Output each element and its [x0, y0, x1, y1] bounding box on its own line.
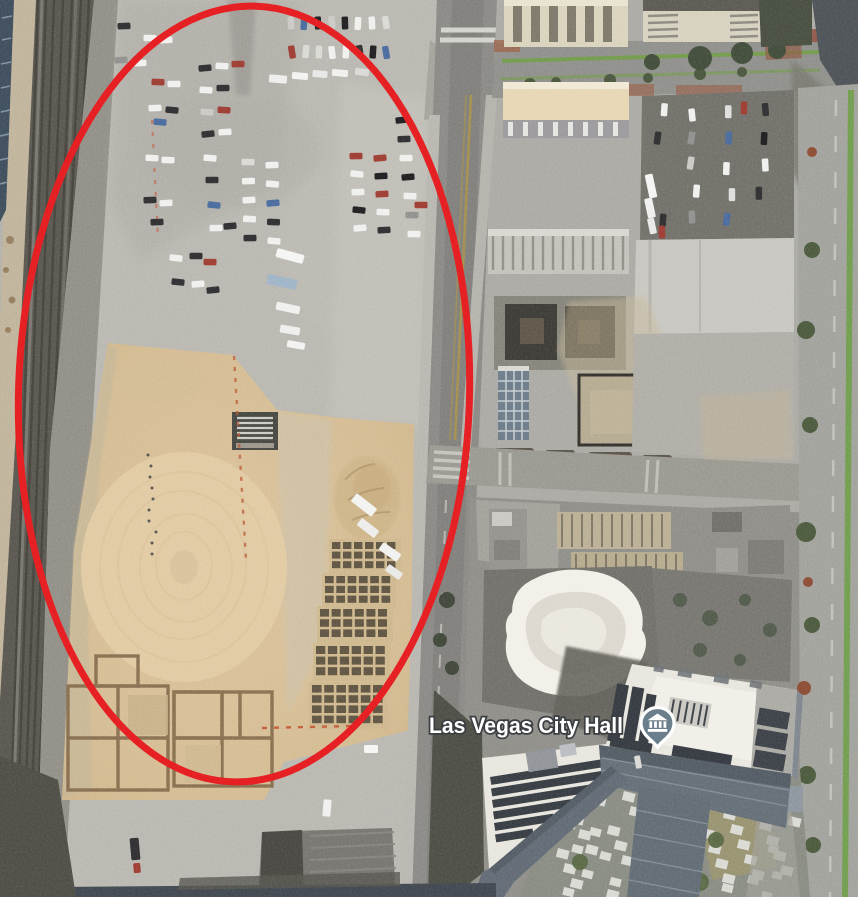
svg-text:Las Vegas City Hall: Las Vegas City Hall [429, 713, 623, 738]
